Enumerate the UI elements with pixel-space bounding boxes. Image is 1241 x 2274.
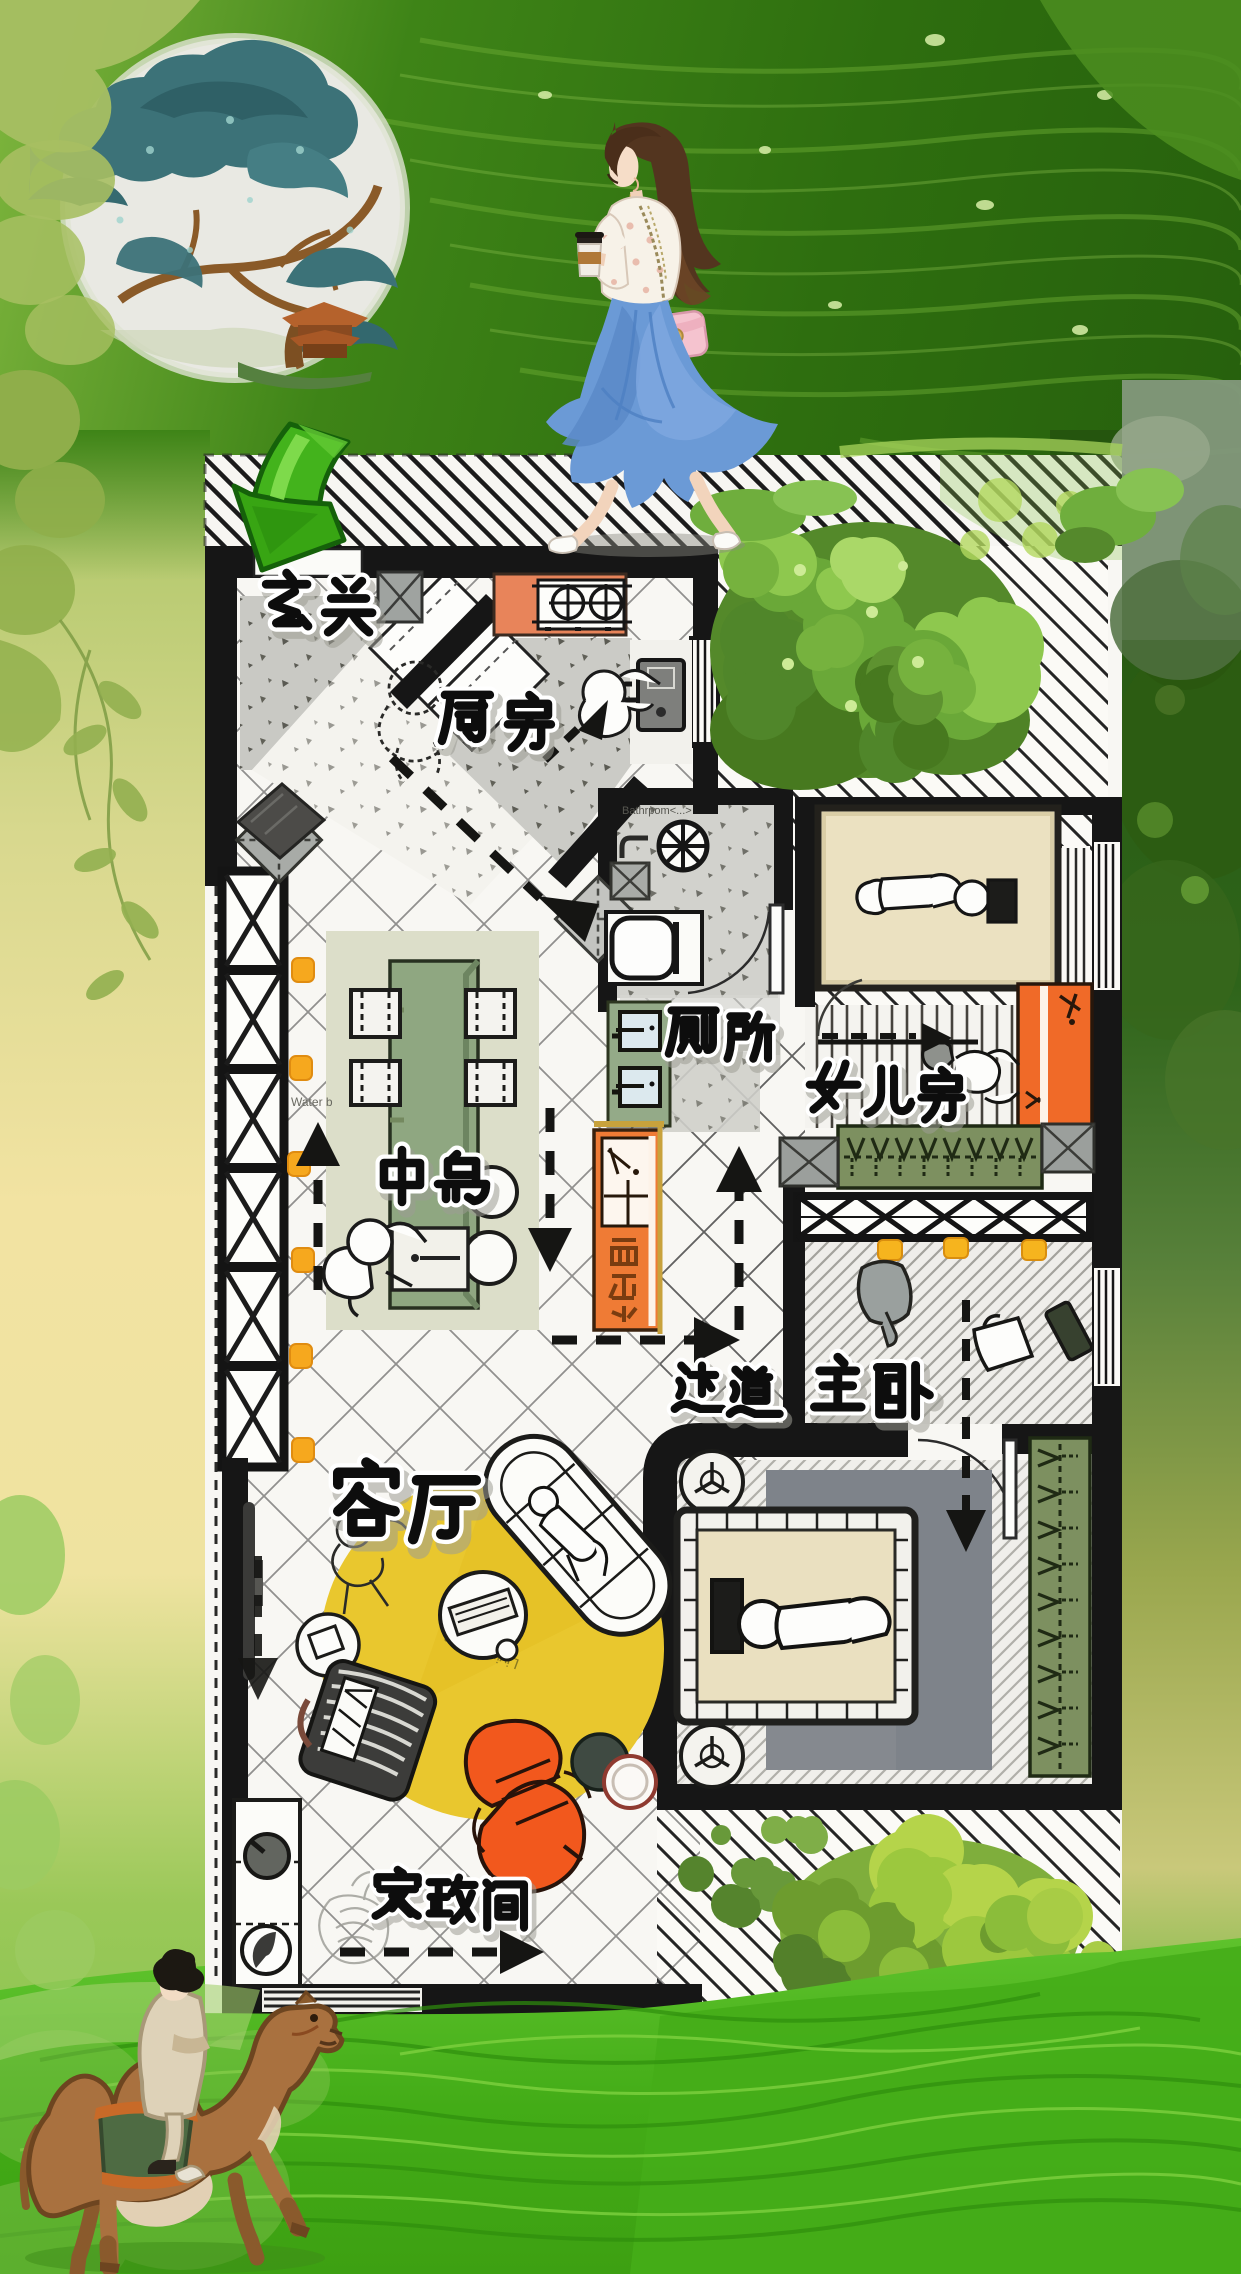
svg-text:Water b: Water b	[291, 1095, 333, 1109]
svg-text:Bathrpom<...>: Bathrpom<...>	[622, 805, 692, 817]
